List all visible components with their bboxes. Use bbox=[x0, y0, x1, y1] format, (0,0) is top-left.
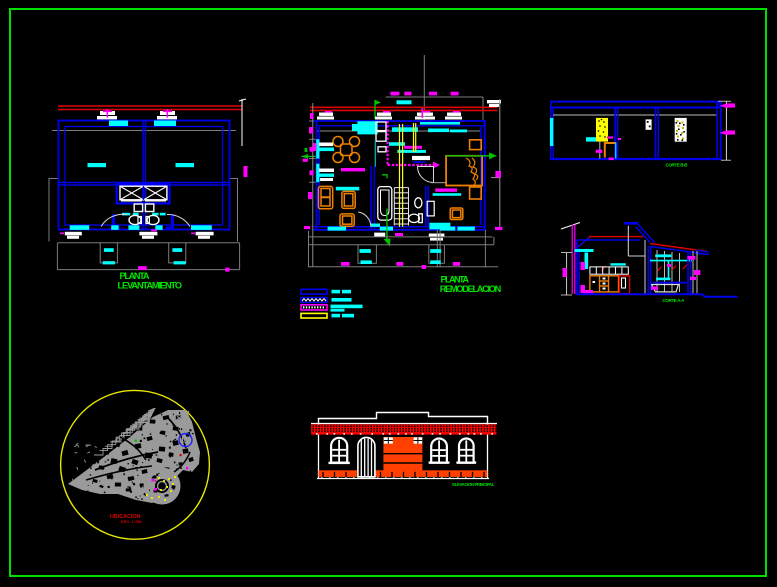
svg-text:ELEVACION PRINCIPAL: ELEVACION PRINCIPAL bbox=[452, 482, 494, 487]
svg-text:PLANTA: PLANTA bbox=[441, 274, 470, 284]
svg-text:LEVANTAMIENTO: LEVANTAMIENTO bbox=[118, 280, 183, 290]
svg-text:CORTE B-B: CORTE B-B bbox=[666, 163, 689, 168]
svg-text:CORTE A-A: CORTE A-A bbox=[662, 298, 685, 303]
svg-text:ESC. 1:750: ESC. 1:750 bbox=[121, 519, 142, 524]
svg-text:REMODELACION: REMODELACION bbox=[440, 284, 502, 294]
